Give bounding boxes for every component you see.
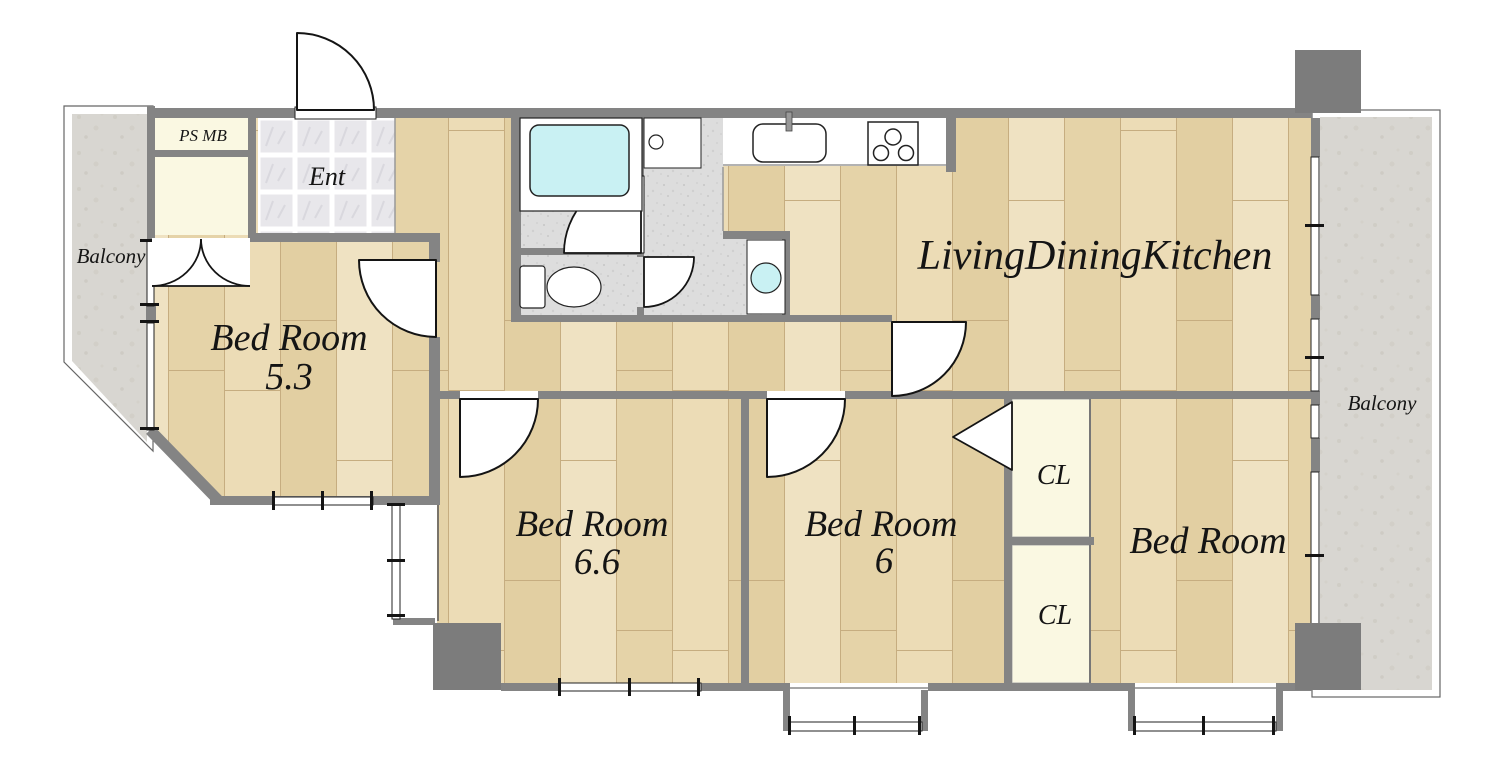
floor-plan: Balcony PS MB Ent Bed Room 5.3 LivingDin… <box>0 0 1511 767</box>
label-ldk: LivingDiningKitchen <box>917 233 1273 279</box>
bathtub-icon <box>520 118 642 211</box>
label-ps-mb: PS MB <box>178 126 227 145</box>
pillar <box>1295 50 1361 113</box>
label-balcony-left: Balcony <box>77 244 146 268</box>
pillar <box>433 623 501 690</box>
doorway-gap <box>460 391 538 399</box>
balcony-left <box>64 106 153 451</box>
label-bedroom6-name: Bed Room <box>804 504 957 545</box>
label-bedroom53-name: Bed Room <box>210 317 367 359</box>
doorway-gap <box>767 391 845 399</box>
wall-closet-divider <box>1008 537 1094 545</box>
label-bedroom53-size: 5.3 <box>265 356 313 398</box>
wall <box>1311 391 1320 405</box>
label-balcony-right: Balcony <box>1348 391 1417 415</box>
wall-divider-66-6 <box>741 391 749 690</box>
wall <box>248 108 256 240</box>
wall <box>1311 438 1320 472</box>
wall <box>429 233 440 262</box>
washbasin-icon <box>644 118 701 168</box>
label-bedroom6-size: 6 <box>875 541 894 582</box>
wall <box>147 150 254 157</box>
wall-kitchen-stub <box>946 108 956 172</box>
wall-bedroom53-top <box>250 233 440 242</box>
label-entrance: Ent <box>308 162 346 191</box>
wall-bedroom-row-top <box>433 391 1312 399</box>
wall-top-left <box>147 108 297 118</box>
stove-icon <box>868 122 918 165</box>
wall-corridor-top <box>511 315 892 322</box>
washing-machine-icon <box>747 240 785 314</box>
balcony-left-floor <box>72 114 147 442</box>
entrance-door-swing <box>297 33 374 110</box>
wall-bottom <box>928 683 1135 691</box>
label-closet-upper: CL <box>1037 460 1071 491</box>
floor-plan-canvas: Balcony PS MB Ent Bed Room 5.3 LivingDin… <box>0 0 1511 767</box>
label-bedroom-right-name: Bed Room <box>1129 520 1286 562</box>
label-bedroom66-size: 6.6 <box>574 542 621 583</box>
window-right-3 <box>1311 405 1319 438</box>
wall-bottom <box>501 683 559 691</box>
closet-double-door <box>152 238 250 286</box>
wall <box>637 307 644 322</box>
wall-bay-side <box>1276 690 1283 731</box>
label-bedroom66-name: Bed Room <box>515 504 668 545</box>
room-storage <box>155 157 248 235</box>
pillar <box>1295 623 1361 690</box>
wall <box>723 231 790 239</box>
window-bedroom53-left-2 <box>147 323 154 430</box>
toilet-icon <box>520 266 601 308</box>
window-right-2 <box>1311 319 1319 391</box>
wall <box>1311 118 1320 157</box>
label-closet-lower: CL <box>1038 600 1072 631</box>
wall <box>147 106 155 240</box>
wall-bottom <box>700 683 790 691</box>
window-bay-bedroom-right <box>1135 722 1276 731</box>
wall <box>1311 295 1320 319</box>
wall <box>429 337 440 505</box>
